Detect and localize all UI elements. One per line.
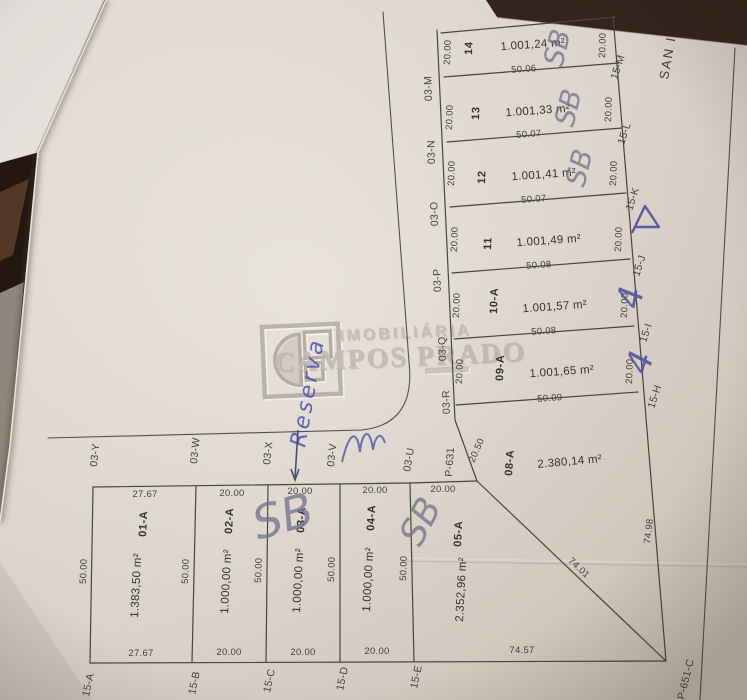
depth-dimension: 50.08 xyxy=(531,325,557,338)
front-dimension: 20.00 xyxy=(219,488,244,499)
side-dimension: 20.00 xyxy=(451,292,463,318)
corner-point-label: P-631 xyxy=(443,447,457,477)
lot-number: 02-A xyxy=(223,507,236,534)
front-dimension: 20.00 xyxy=(430,484,455,495)
lot-number: 10-A xyxy=(488,287,501,314)
photo-of-plat-document: IMOBILIÁRIA CAMPOS PRADO IMOBILIÁRIA CAM… xyxy=(0,0,747,700)
side-dimension: 20.00 xyxy=(608,160,620,186)
lot-number: 05-A xyxy=(452,520,465,547)
depth-dimension: 50.00 xyxy=(326,556,338,582)
lot-number: 13 xyxy=(470,106,482,120)
front-dimension: 20.00 xyxy=(362,485,387,496)
side-dimension: 20.00 xyxy=(442,39,454,65)
pin-label: 03-R xyxy=(440,390,453,414)
lot-number: 14 xyxy=(463,41,475,55)
depth-dimension: 50.00 xyxy=(180,558,192,584)
side-dimension: 20.00 xyxy=(597,32,609,58)
lot-number: 01-A xyxy=(137,510,150,537)
pin-label: 03-Y xyxy=(88,443,102,468)
pin-label: 03-X xyxy=(261,441,275,466)
front-dimension: 27.67 xyxy=(132,489,157,500)
rear-dimension: 74.57 xyxy=(509,645,534,656)
depth-dimension: 50.00 xyxy=(78,558,90,584)
side-dimension: 20.00 xyxy=(603,96,615,122)
depth-dimension: 50.07 xyxy=(516,128,542,141)
lot-number: 09-A xyxy=(494,354,507,381)
depth-dimension: 50.08 xyxy=(526,259,552,272)
lot-number: 08-A xyxy=(503,449,517,476)
rear-dimension: 20.00 xyxy=(364,646,389,657)
rear-dimension: 27.67 xyxy=(128,648,153,659)
side-dimension: 20.00 xyxy=(446,160,458,186)
pin-label: 03-Q xyxy=(436,336,449,361)
pin-label: 03-V xyxy=(325,443,339,468)
lot-number: 04-A xyxy=(365,504,378,531)
pin-label: 03-M xyxy=(422,76,435,102)
depth-dimension: 50.00 xyxy=(398,555,410,581)
depth-dimension: 50.07 xyxy=(521,193,547,206)
side-dimension: 20.00 xyxy=(449,226,461,252)
depth-dimension: 50.09 xyxy=(537,392,563,405)
depth-dimension: 50.00 xyxy=(253,557,265,583)
lot-number: 11 xyxy=(482,237,494,250)
depth-dimension: 50.06 xyxy=(511,63,537,76)
pin-label: 03-P xyxy=(431,269,444,293)
lot-number: 12 xyxy=(476,170,488,184)
rear-dimension: 20.00 xyxy=(216,647,241,658)
side-dimension: 20.00 xyxy=(454,358,466,384)
rear-dimension: 20.00 xyxy=(290,647,315,658)
pin-label: 03-O xyxy=(428,201,441,226)
side-dimension: 20.00 xyxy=(444,104,456,130)
pin-label: 03-N xyxy=(425,140,438,164)
side-dimension: 20.00 xyxy=(613,226,625,252)
